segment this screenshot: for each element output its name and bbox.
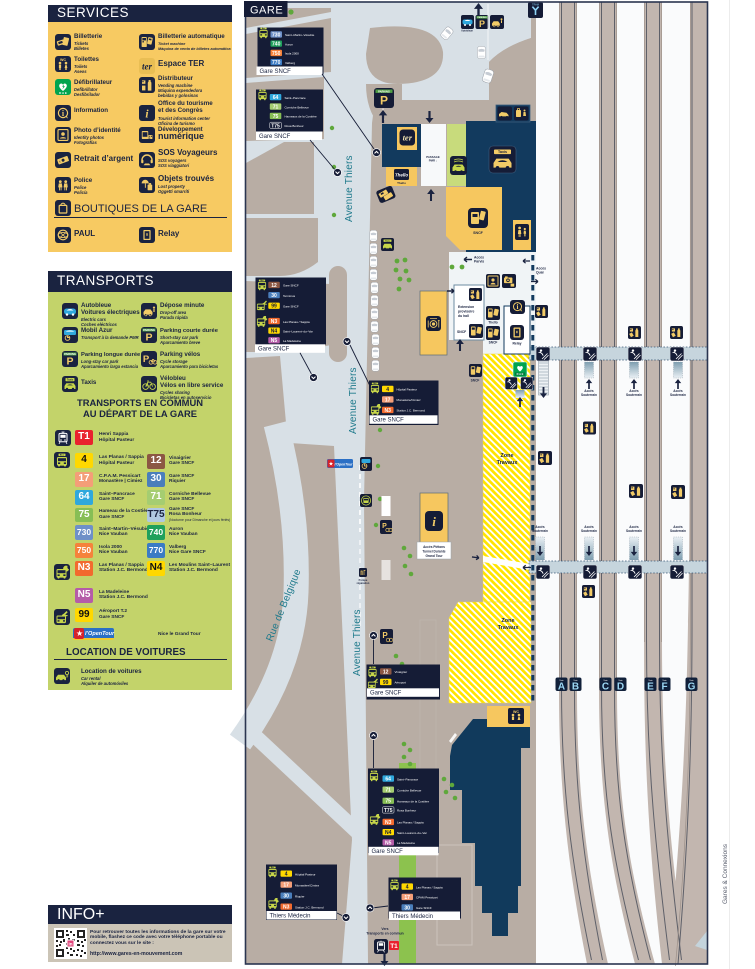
svg-text:C: C [602,681,609,692]
svg-text:Souterrain: Souterrain [626,529,642,533]
svg-text:Souterrain: Souterrain [581,393,597,397]
svg-text:Gare SNCF: Gare SNCF [373,418,405,424]
svg-text:Saint–Pancrace: Saint–Pancrace [397,777,419,781]
svg-text:Gare SNCF: Gare SNCF [372,849,404,855]
svg-text:Saint–Laurent–du–Var: Saint–Laurent–du–Var [397,831,427,835]
svg-text:4: 4 [386,387,389,393]
svg-text:Gare SNCF: Gare SNCF [259,134,291,140]
svg-text:30: 30 [271,293,277,299]
svg-text:64: 64 [273,95,279,101]
svg-text:Aéroport: Aéroport [395,681,407,685]
svg-text:D: D [617,681,624,692]
svg-text:30: 30 [283,894,289,900]
svg-text:Gare SNCF: Gare SNCF [258,347,290,353]
svg-text:Hameaux de la Costière: Hameaux de la Costière [397,800,430,804]
svg-text:730: 730 [272,32,281,38]
svg-text:Isola 2000: Isola 2000 [285,52,299,56]
svg-text:Auron: Auron [285,42,293,46]
svg-text:Souterrain: Souterrain [626,393,642,397]
svg-text:Extension: Extension [458,305,474,309]
svg-text:Grand Tour: Grand Tour [425,554,443,558]
svg-text:Avenue Thiers: Avenue Thiers [344,155,355,222]
svg-text:Las Planas / Sappia: Las Planas / Sappia [283,320,310,324]
svg-text:P: P [382,631,388,640]
svg-text:Corniche Bellevue: Corniche Bellevue [285,105,310,109]
svg-text:N3: N3 [384,408,391,414]
svg-text:750: 750 [272,51,281,57]
svg-text:SNCF: SNCF [489,341,498,345]
svg-text:Souterrain: Souterrain [670,393,686,397]
svg-text:Gare SNCF: Gare SNCF [260,69,292,75]
svg-text:99: 99 [383,680,389,686]
svg-text:Parvis: Parvis [474,260,484,264]
svg-text:Monastère/Cimiez: Monastère/Cimiez [295,883,320,887]
svg-text:GARE: GARE [250,5,283,17]
svg-text:N3: N3 [283,905,290,911]
svg-text:Relay: Relay [512,342,521,346]
svg-text:Accès Piétons: Accès Piétons [423,545,445,549]
svg-text:TRAM: TRAM [532,4,539,7]
svg-text:Avenue Thiers: Avenue Thiers [352,609,363,676]
svg-text:12: 12 [271,283,277,289]
svg-text:réparation: réparation [357,581,370,585]
svg-text:Gare SNCF: Gare SNCF [283,284,299,288]
svg-text:F: F [661,681,667,692]
svg-text:Riquier: Riquier [295,894,305,898]
svg-text:17: 17 [385,397,391,403]
svg-text:740: 740 [272,42,281,48]
svg-text:Valberg: Valberg [285,61,295,65]
svg-text:Transports en commun: Transports en commun [366,932,404,936]
svg-text:CPAM Pessicart: CPAM Pessicart [416,896,438,900]
svg-text:T75: T75 [384,808,393,814]
svg-text:Las Planas / Sappia: Las Planas / Sappia [397,821,424,825]
svg-text:Tunnel Durante: Tunnel Durante [422,550,445,554]
svg-text:Souterrain: Souterrain [532,529,548,533]
svg-text:Station J.C. Bermond: Station J.C. Bermond [295,905,324,909]
svg-text:Rosa Bonheur: Rosa Bonheur [397,809,416,813]
svg-text:Saint–Pancrace: Saint–Pancrace [285,96,307,100]
svg-text:99: 99 [271,304,277,310]
svg-text:D A E: D A E [517,372,524,376]
svg-text:Thello: Thello [488,321,497,325]
svg-text:Hameaux de la Costière: Hameaux de la Costière [285,115,318,119]
svg-text:Gare SNCF: Gare SNCF [283,305,299,309]
svg-text:N5: N5 [385,840,392,846]
svg-text:Saint–Martin–Vésubie: Saint–Martin–Vésubie [285,33,315,37]
svg-text:Avenue Thiers: Avenue Thiers [348,367,359,434]
svg-text:l’OpenTour: l’OpenTour [335,462,354,466]
svg-text:Zone: Zone [500,453,513,459]
svg-text:Thiers Médecin: Thiers Médecin [392,914,433,920]
svg-text:La Madeleine: La Madeleine [283,339,301,343]
svg-text:A: A [558,681,565,692]
svg-text:Taxis: Taxis [385,240,389,242]
svg-text:P: P [380,94,388,108]
svg-text:Vers: Vers [381,927,388,931]
svg-text:i: i [517,303,519,311]
svg-text:ter: ter [403,133,413,143]
svg-text:Travaux: Travaux [498,625,520,631]
svg-text:★: ★ [329,461,334,468]
svg-text:4: 4 [285,872,288,878]
svg-text:Vinaigrier: Vinaigrier [395,670,408,674]
svg-text:Hôpital Pasteur: Hôpital Pasteur [295,872,316,876]
svg-text:Travaux: Travaux [497,460,519,466]
svg-text:La Madeleine: La Madeleine [397,841,415,845]
svg-text:N3: N3 [271,319,278,325]
svg-text:du hall: du hall [458,314,469,318]
svg-text:i: i [432,514,436,529]
svg-text:770: 770 [272,60,281,66]
svg-text:75: 75 [273,114,279,120]
svg-text:SNCF: SNCF [471,379,480,383]
svg-text:Terminus: Terminus [283,294,296,298]
svg-text:17: 17 [283,883,289,889]
svg-text:Quai: Quai [536,271,544,275]
svg-text:Gare SNCF: Gare SNCF [370,691,402,697]
svg-text:N5: N5 [271,338,278,344]
svg-text:PMR ↓: PMR ↓ [429,159,438,163]
svg-text:Gare SNCF: Gare SNCF [416,906,432,910]
svg-text:Station J.C. Bermond: Station J.C. Bermond [397,409,426,413]
svg-text:30: 30 [404,905,410,911]
svg-text:Saint–Laurent–du–Var: Saint–Laurent–du–Var [283,329,313,333]
svg-text:Autobleue: Autobleue [461,30,473,33]
svg-text:Zone: Zone [501,618,514,624]
svg-text:Thiers Médecin: Thiers Médecin [270,913,311,919]
svg-text:T1: T1 [390,943,398,950]
svg-text:provisoire: provisoire [458,310,475,314]
svg-text:75: 75 [385,799,391,805]
svg-text:71: 71 [273,105,279,111]
svg-text:N3: N3 [385,820,392,826]
svg-text:P: P [479,19,485,29]
svg-text:G: G [688,681,696,692]
svg-text:SNCF: SNCF [473,231,484,235]
svg-text:Rosa Bonheur: Rosa Bonheur [285,124,304,128]
svg-text:Souterrain: Souterrain [670,529,686,533]
svg-text:Hôpital Pasteur: Hôpital Pasteur [397,388,418,392]
svg-text:Thello: Thello [397,181,406,185]
svg-text:T75: T75 [271,123,280,129]
svg-text:4: 4 [406,885,409,891]
svg-text:E: E [647,681,654,692]
svg-text:Las Planas / Sappia: Las Planas / Sappia [416,885,443,889]
svg-text:17: 17 [404,895,410,901]
svg-text:Souterrain: Souterrain [581,529,597,533]
svg-text:12: 12 [383,669,389,675]
svg-text:71: 71 [385,788,391,794]
svg-text:Monastère/Cimiez: Monastère/Cimiez [397,398,422,402]
svg-text:B: B [572,681,579,692]
svg-text:SNCF: SNCF [457,330,466,334]
svg-text:WC: WC [513,710,519,714]
svg-text:Taxis: Taxis [498,150,507,154]
svg-text:64: 64 [385,777,391,783]
svg-text:Thello: Thello [395,173,409,178]
svg-text:N4: N4 [385,830,392,836]
svg-text:N4: N4 [271,329,278,335]
svg-text:Corniche Bellevue: Corniche Bellevue [397,788,422,792]
